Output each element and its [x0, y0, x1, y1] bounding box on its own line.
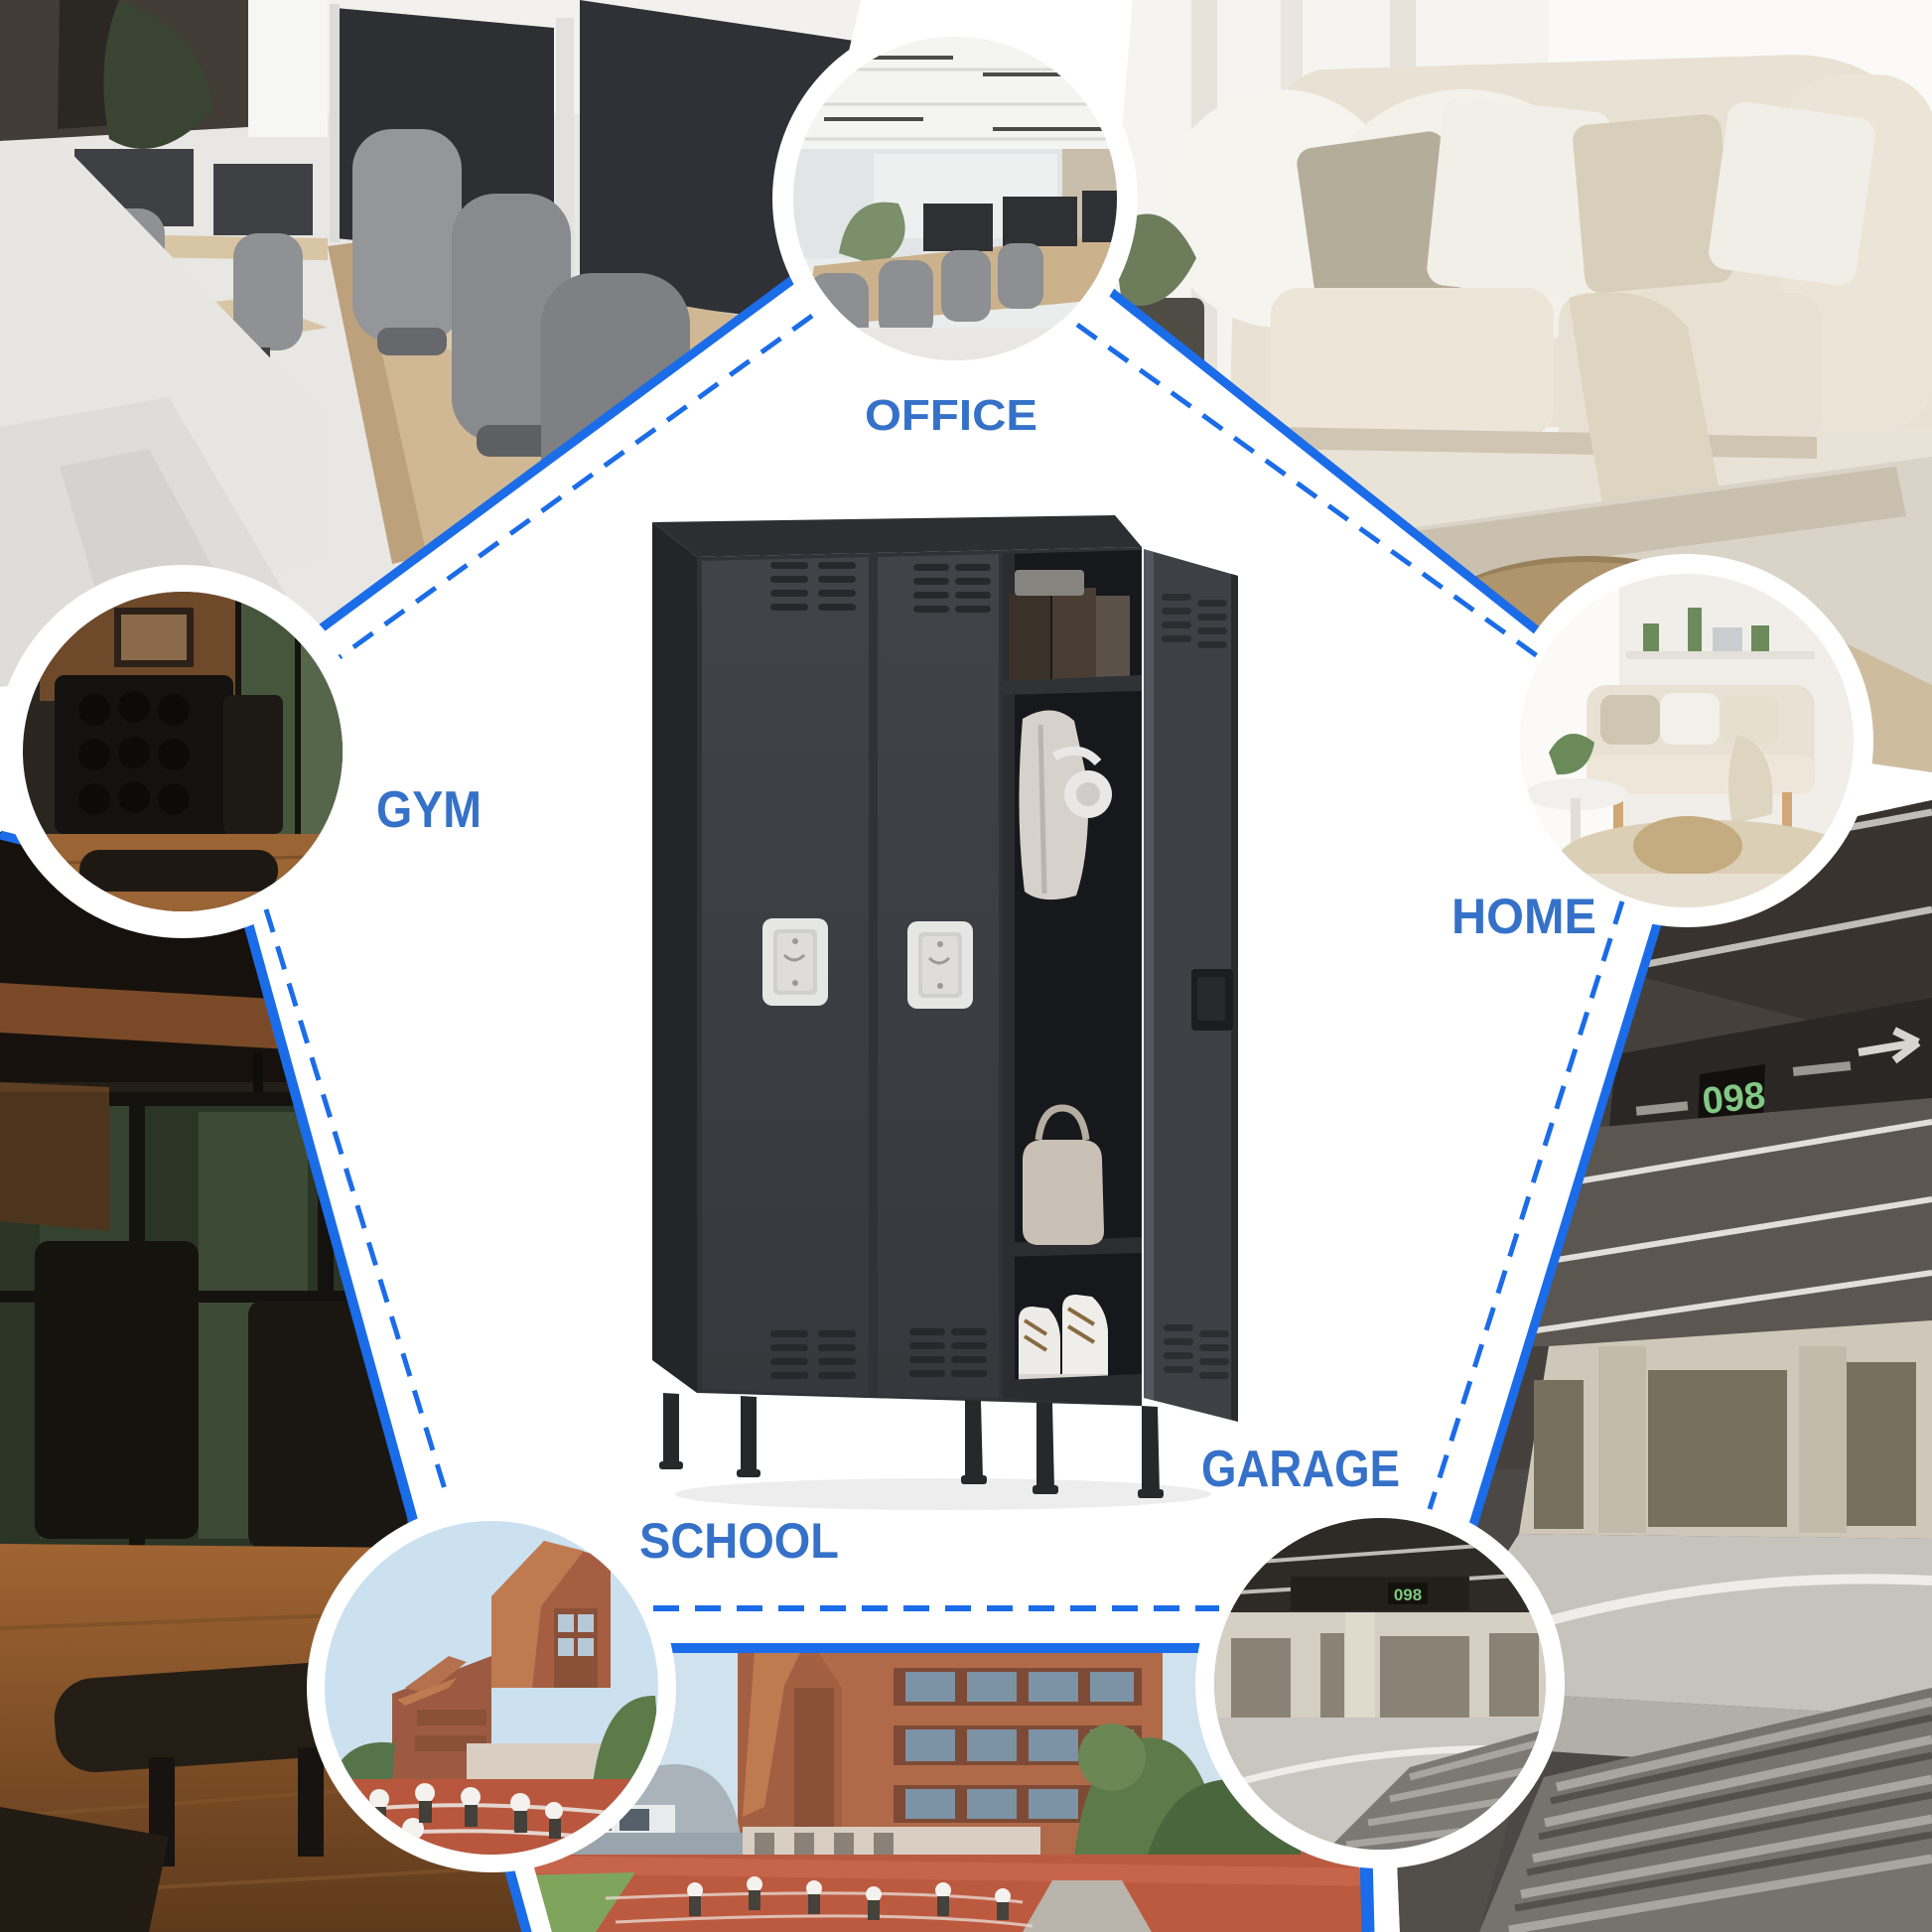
svg-text:OFFICE: OFFICE [865, 391, 1037, 440]
svg-text:098: 098 [1394, 1586, 1422, 1604]
svg-text:GARAGE: GARAGE [1201, 1441, 1400, 1498]
svg-text:HOME: HOME [1451, 889, 1596, 944]
svg-text:GYM: GYM [376, 781, 482, 839]
svg-text:SCHOOL: SCHOOL [639, 1513, 839, 1569]
